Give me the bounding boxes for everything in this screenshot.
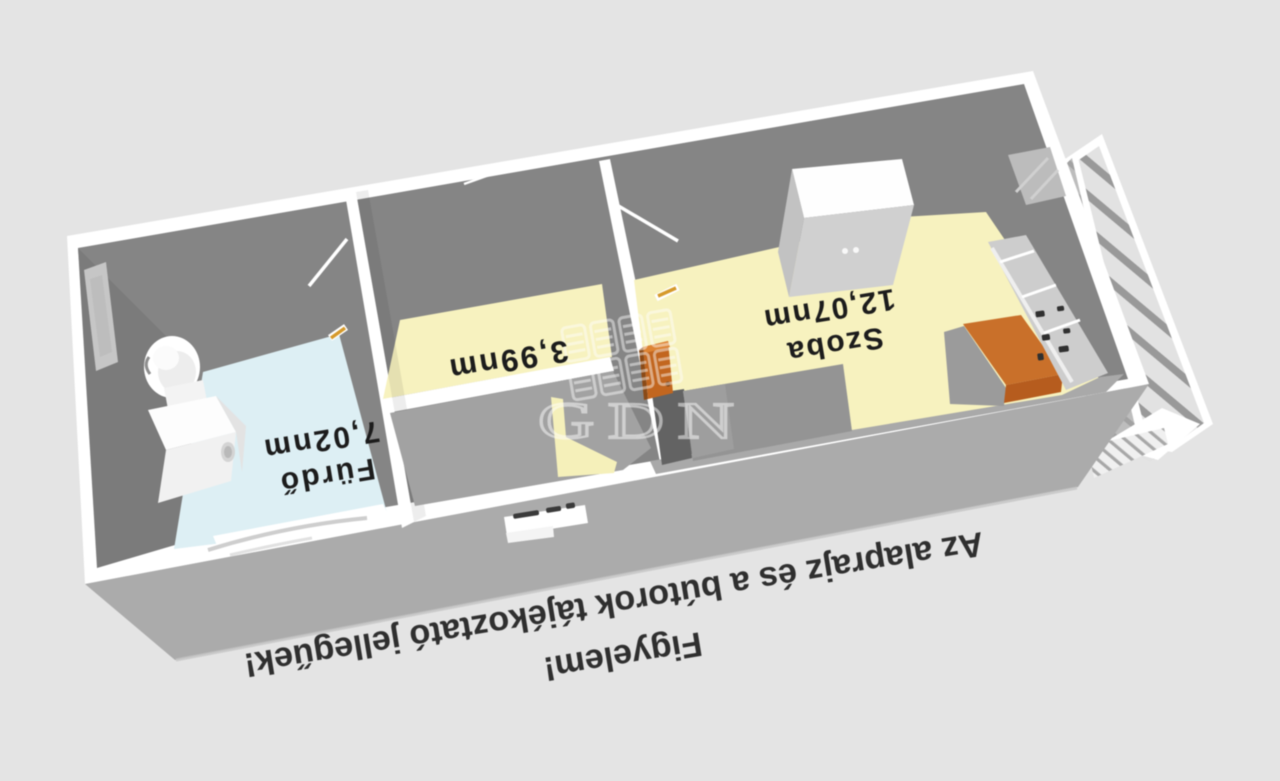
svg-text:GDN: GDN bbox=[538, 393, 747, 450]
